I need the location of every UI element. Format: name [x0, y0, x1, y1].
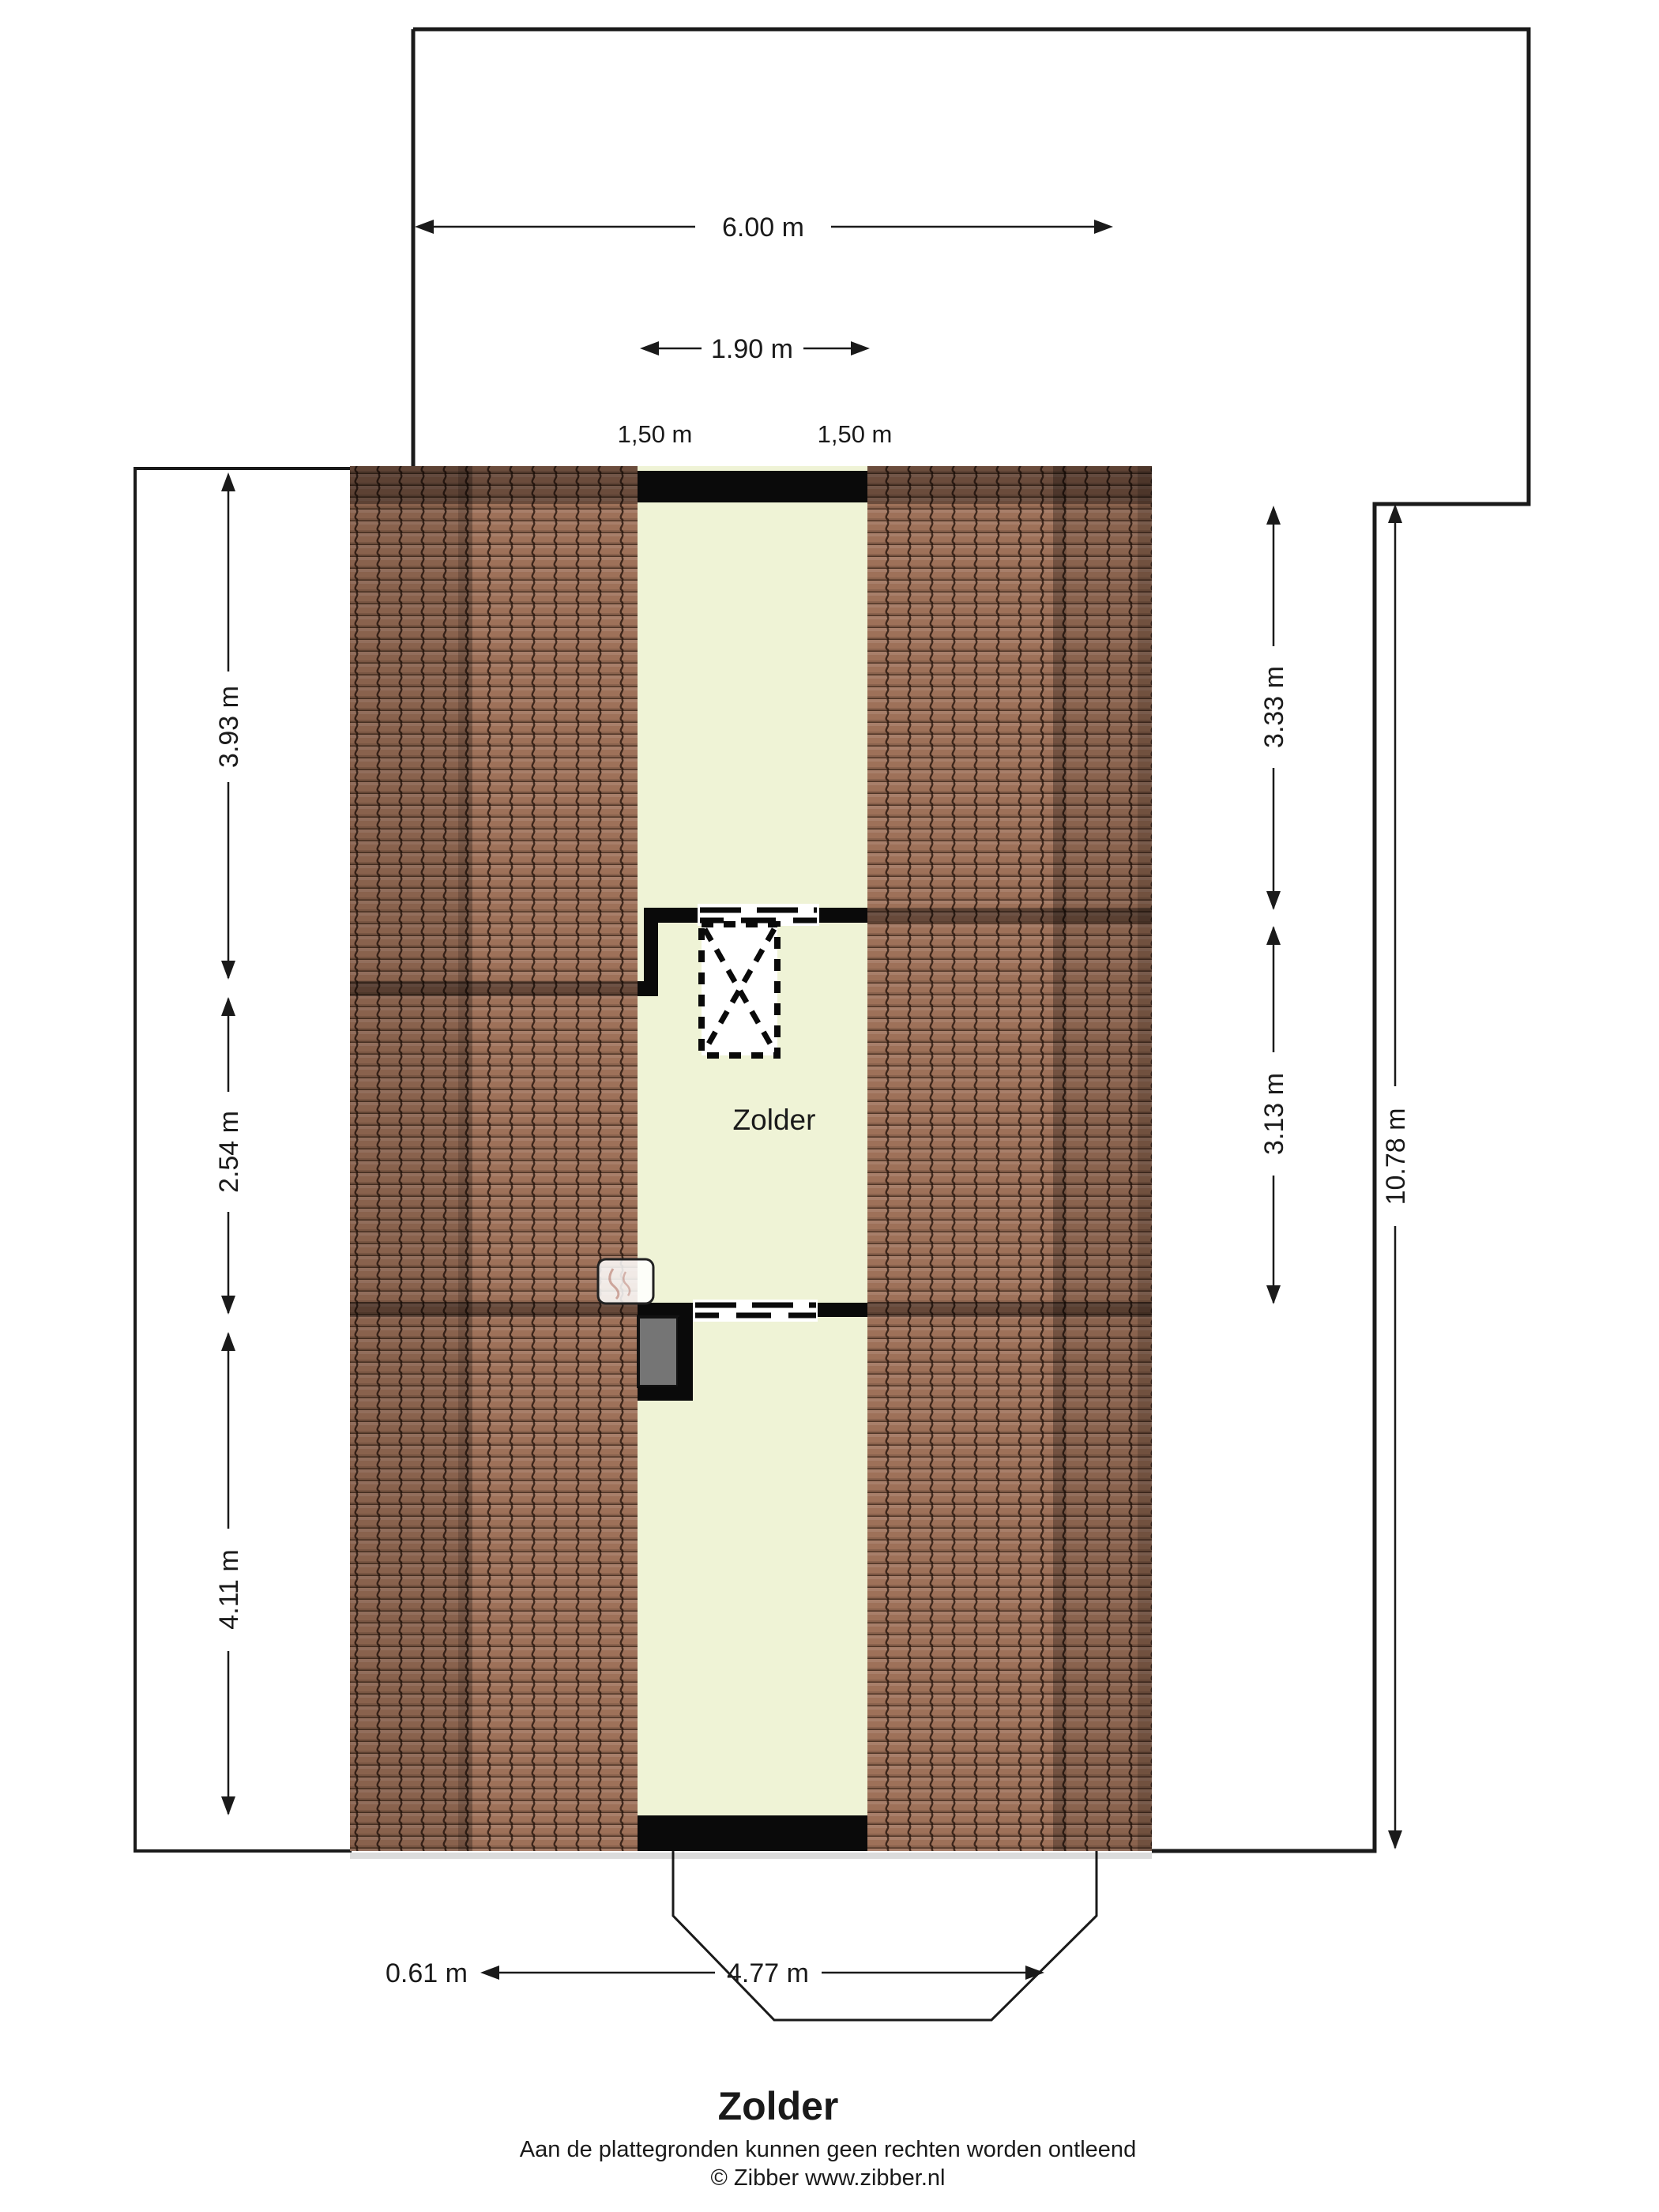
footer-copyright: © Zibber www.zibber.nl: [711, 2165, 946, 2191]
dim-label-right-total: 10.78 m: [1381, 1108, 1411, 1206]
opening-upper-wall: [698, 904, 819, 926]
dim-label-left-bottom: 4.11 m: [214, 1549, 244, 1629]
wall-partition2-right: [818, 1303, 867, 1317]
wall-partition1-foot: [638, 981, 658, 996]
dim-label-top-width: 6.00 m: [722, 213, 804, 243]
roof-left-wall1-tint: [350, 981, 638, 996]
roof-left-outer-shade: [350, 466, 458, 1851]
room-label-zolder: Zolder: [733, 1104, 816, 1136]
dim-label-right-mid: 3.13 m: [1259, 1073, 1289, 1155]
wall-top-exterior: [638, 471, 867, 502]
shaft-gray-box: [638, 1317, 678, 1386]
roof-right-edge-shade: [1138, 466, 1152, 1851]
wall-partition2-left: [638, 1303, 693, 1317]
dimension-bottom: 0.61 m 4.77 m: [386, 1958, 1044, 1988]
roof-right-wall2-tint: [867, 1302, 1152, 1317]
dimension-top-width: 6.00 m: [415, 213, 1113, 243]
roof-bottom-shadow: [350, 1853, 1152, 1859]
wall-bottom-exterior: [638, 1815, 867, 1851]
loft-hatch: [702, 924, 777, 1055]
dim-label-left-top: 3.93 m: [214, 686, 244, 768]
dimension-right-mid: 3.13 m: [1259, 926, 1289, 1304]
dim-label-top-left-sub: 1,50 m: [618, 420, 693, 448]
dim-label-bottom-small: 0.61 m: [386, 1958, 468, 1988]
footer: Zolder Aan de plattegronden kunnen geen …: [520, 2084, 1136, 2191]
dim-label-right-top: 3.33 m: [1259, 666, 1289, 748]
dim-label-top-right-sub: 1,50 m: [818, 420, 893, 448]
wall-partition1-right: [818, 908, 867, 923]
chimney-body: [598, 1259, 653, 1303]
plan-title: Zolder: [718, 2084, 839, 2128]
dimension-right-top: 3.33 m: [1259, 506, 1289, 910]
shaft-wall-bottom: [638, 1386, 693, 1401]
dimension-right-total: 10.78 m: [1381, 504, 1411, 1849]
chimney: [598, 1259, 653, 1303]
roof-right: [867, 466, 1152, 1851]
dim-label-bottom-main: 4.77 m: [727, 1958, 809, 1988]
room-zolder-floor: [638, 466, 867, 1851]
roof-left: [350, 466, 638, 1851]
dim-label-inner-width: 1.90 m: [711, 334, 793, 364]
roof-right-wall1-tint: [867, 908, 1152, 923]
roof-right-ridge-stripe: [1053, 466, 1066, 1851]
outline-bottom-bay: [673, 1851, 1097, 2020]
footer-disclaimer: Aan de plattegronden kunnen geen rechten…: [520, 2137, 1136, 2162]
opening-lower-wall: [693, 1300, 818, 1322]
dim-label-left-mid: 2.54 m: [214, 1111, 244, 1193]
dimension-inner-width: 1.90 m: [640, 334, 870, 364]
roof-left-ridge-stripe: [458, 466, 472, 1851]
roof-left-wall2-tint: [350, 1302, 638, 1317]
floor-plan-page: Zolder 6.00 m 1.90 m 1,50 m 1,50 m 3.93 …: [0, 0, 1659, 2212]
floor-plan-canvas: Zolder 6.00 m 1.90 m 1,50 m 1,50 m 3.93 …: [0, 0, 1659, 2212]
